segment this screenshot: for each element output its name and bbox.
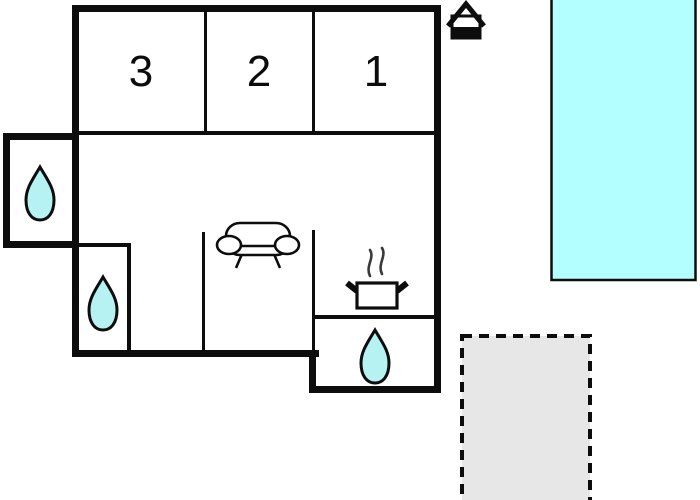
cooking-pot-icon xyxy=(347,248,407,308)
room-1-label: 1 xyxy=(364,47,388,96)
sofa-armrest-right xyxy=(275,236,299,254)
water-drop-icon xyxy=(89,277,117,330)
entrance-house-icon xyxy=(448,4,484,38)
floor-plan-page: 3 2 1 xyxy=(0,0,700,500)
wall-bottom-main xyxy=(72,350,319,357)
wall-left-annex-top xyxy=(3,133,79,140)
water-drop-icon xyxy=(26,167,54,220)
wall-left-annex-left xyxy=(3,133,10,248)
entrance-house-door xyxy=(452,27,480,38)
wall-living-right xyxy=(312,230,315,351)
wall-kitchen-bottom xyxy=(315,315,434,319)
wall-bottom-annex-bottom xyxy=(309,386,441,393)
sofa-icon xyxy=(217,223,299,268)
wall-outer-top xyxy=(72,5,441,12)
pot-body xyxy=(357,283,397,308)
wall-outer-left xyxy=(72,5,79,357)
room-2-label: 2 xyxy=(247,47,271,96)
wall-outer-right xyxy=(434,5,441,393)
wall-rooms-bottom xyxy=(79,131,434,135)
swimming-pool xyxy=(552,0,696,280)
wall-living-left xyxy=(202,232,205,350)
sofa-armrest-left xyxy=(217,236,241,254)
wall-small-room-right xyxy=(127,243,131,350)
steam-icon xyxy=(381,248,384,274)
steam-icon xyxy=(369,250,372,276)
wall-small-room-top xyxy=(79,243,130,247)
water-drop-icon xyxy=(361,330,389,383)
wall-room-divider-left xyxy=(204,12,207,131)
floor-plan: 3 2 1 xyxy=(0,0,700,500)
wall-left-annex-bottom xyxy=(3,241,79,248)
terrace-dashed-area xyxy=(462,336,590,500)
room-3-label: 3 xyxy=(129,47,153,96)
wall-room-divider-right xyxy=(312,12,315,131)
